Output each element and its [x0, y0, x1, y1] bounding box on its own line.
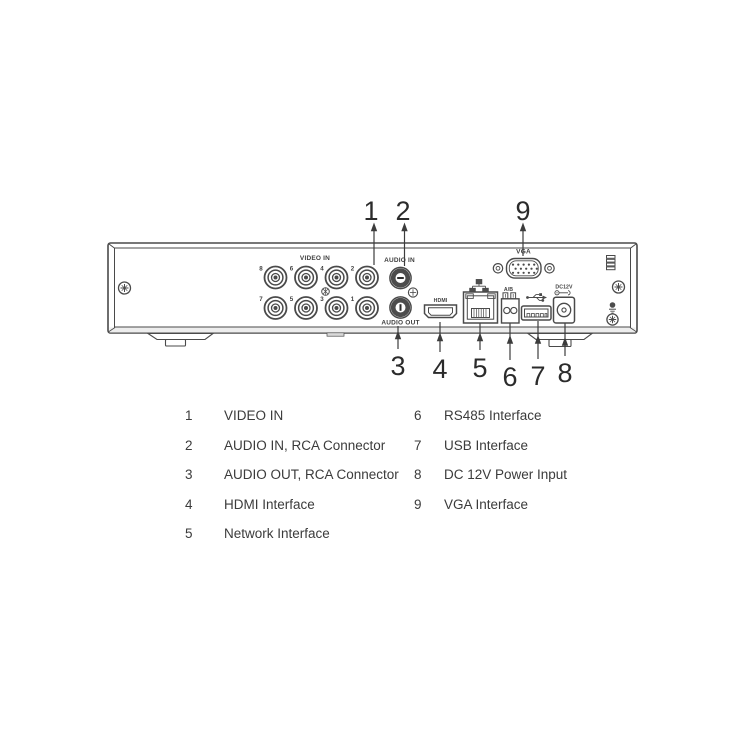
legend-row: 5 Network Interface [185, 525, 399, 555]
legend-item-label: RS485 Interface [444, 407, 542, 424]
callout-number-6: 6 [502, 362, 517, 392]
legend-row: 9 VGA Interface [414, 496, 567, 526]
chassis-feet [148, 333, 592, 347]
legend-item-label: AUDIO IN, RCA Connector [224, 437, 385, 454]
legend-row: 2 AUDIO IN, RCA Connector [185, 437, 399, 467]
legend-item-label: VIDEO IN [224, 407, 283, 424]
callout-number-5: 5 [472, 353, 487, 383]
legend-row: 7 USB Interface [414, 437, 567, 467]
bnc-connector [356, 297, 378, 319]
rs485-label: A/B [504, 287, 513, 293]
bnc-channel-number: 8 [259, 266, 263, 273]
legend-row: 8 DC 12V Power Input [414, 466, 567, 496]
legend-row: 1 VIDEO IN [185, 407, 399, 437]
usb-port [522, 306, 552, 320]
bnc-channel-number: 4 [320, 266, 324, 273]
legend-item-label: Network Interface [224, 525, 330, 542]
legend-item-number: 1 [185, 407, 224, 424]
rear-panel-diagram: VIDEO IN [0, 0, 750, 400]
legend-item-number: 7 [414, 437, 444, 454]
audio-in-port [390, 267, 411, 288]
bnc-connector [326, 297, 348, 319]
audio-out-port [390, 297, 411, 318]
callout-number-4: 4 [432, 354, 447, 384]
legend-item-label: AUDIO OUT, RCA Connector [224, 466, 399, 483]
legend-column-right: 6 RS485 Interface 7 USB Interface 8 DC 1… [414, 407, 567, 525]
dc-power-port [554, 297, 575, 323]
legend-item-number: 5 [185, 525, 224, 542]
callout-number-2: 2 [395, 196, 410, 226]
callout-number-7: 7 [530, 361, 545, 391]
bnc-channel-number: 2 [351, 266, 355, 273]
legend-column-left: 1 VIDEO IN 2 AUDIO IN, RCA Connector 3 A… [185, 407, 399, 555]
bnc-connector [356, 267, 378, 289]
legend-item-label: DC 12V Power Input [444, 466, 567, 483]
legend-item-label: USB Interface [444, 437, 528, 454]
callout-number-8: 8 [557, 358, 572, 388]
callout-number-1: 1 [363, 196, 378, 226]
bnc-channel-number: 3 [320, 296, 324, 303]
callout-number-9: 9 [515, 196, 530, 226]
legend-item-label: HDMI Interface [224, 496, 315, 513]
legend-item-number: 6 [414, 407, 444, 424]
audio-out-label: AUDIO OUT [381, 320, 419, 327]
bnc-channel-number: 5 [290, 296, 294, 303]
legend-item-number: 2 [185, 437, 224, 454]
hdmi-port [425, 305, 457, 318]
screenshot-root: VIDEO IN [0, 0, 750, 750]
legend-item-number: 8 [414, 466, 444, 483]
bnc-connector [265, 267, 287, 289]
power-label: DC12V [555, 285, 573, 291]
legend-item-label: VGA Interface [444, 496, 528, 513]
legend-item-number: 4 [185, 496, 224, 513]
legend-row: 3 AUDIO OUT, RCA Connector [185, 466, 399, 496]
network-port [464, 292, 498, 323]
callout-number-3: 3 [390, 351, 405, 381]
bnc-connector [295, 267, 317, 289]
bnc-connector [295, 297, 317, 319]
bnc-channel-number: 7 [259, 296, 263, 303]
video-in-label: VIDEO IN [300, 255, 330, 262]
bnc-connector [326, 267, 348, 289]
bnc-channel-number: 1 [351, 296, 355, 303]
legend-row: 4 HDMI Interface [185, 496, 399, 526]
legend-item-number: 3 [185, 466, 224, 483]
bnc-connector [265, 297, 287, 319]
legend-item-number: 9 [414, 496, 444, 513]
audio-in-label: AUDIO IN [384, 257, 415, 264]
legend-row: 6 RS485 Interface [414, 407, 567, 437]
hdmi-label: HDMI [434, 298, 448, 304]
bnc-channel-number: 6 [290, 266, 294, 273]
